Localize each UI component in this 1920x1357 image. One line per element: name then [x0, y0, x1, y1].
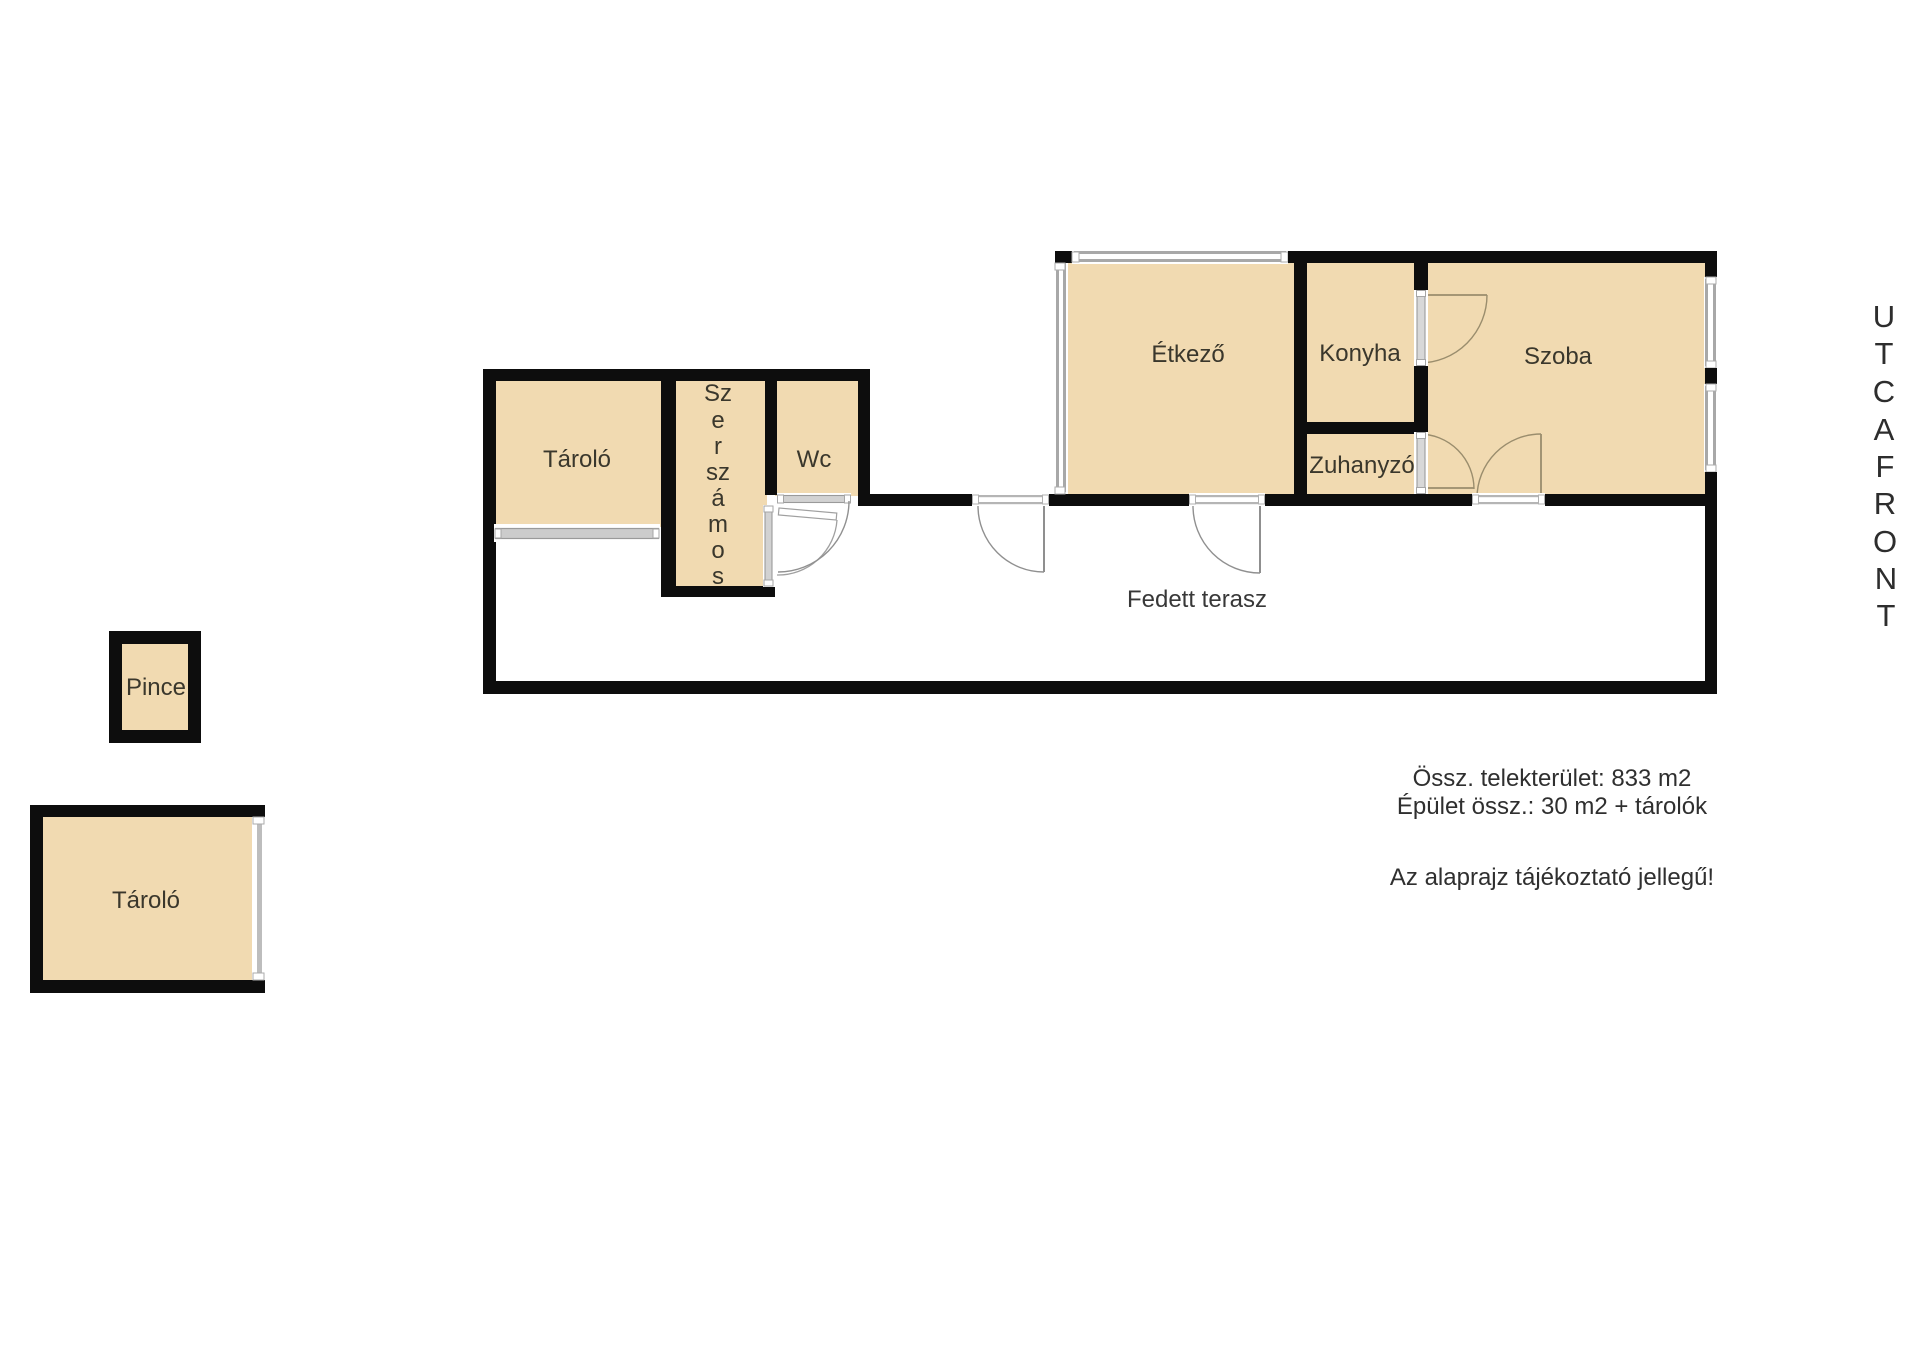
svg-text:Étkező: Étkező: [1151, 341, 1224, 368]
svg-text:A: A: [1874, 412, 1895, 447]
svg-text:Pince: Pince: [126, 674, 186, 701]
svg-text:O: O: [1873, 524, 1897, 559]
svg-text:Épület össz.: 30 m2 + tárolók: Épület össz.: 30 m2 + tárolók: [1397, 793, 1708, 820]
svg-text:N: N: [1875, 561, 1897, 596]
svg-text:T: T: [1875, 336, 1894, 371]
svg-text:Zuhanyzó: Zuhanyzó: [1309, 452, 1414, 479]
svg-text:Szoba: Szoba: [1524, 343, 1593, 370]
svg-text:Össz. telekterület: 833 m2: Össz. telekterület: 833 m2: [1413, 765, 1692, 792]
svg-text:s: s: [712, 563, 724, 590]
svg-text:T: T: [1877, 598, 1896, 633]
svg-text:Sz: Sz: [704, 380, 732, 407]
svg-text:e: e: [711, 407, 724, 434]
svg-text:Tároló: Tároló: [543, 446, 611, 473]
svg-text:R: R: [1874, 486, 1896, 521]
svg-text:Fedett terasz: Fedett terasz: [1127, 586, 1267, 613]
svg-text:Tároló: Tároló: [112, 887, 180, 914]
svg-text:F: F: [1876, 449, 1895, 484]
svg-text:m: m: [708, 511, 728, 538]
svg-text:á: á: [711, 485, 725, 512]
svg-text:Az alaprajz tájékoztató jelleg: Az alaprajz tájékoztató jellegű!: [1390, 864, 1714, 891]
svg-text:Wc: Wc: [797, 446, 832, 473]
svg-text:Konyha: Konyha: [1319, 340, 1401, 367]
svg-text:U: U: [1873, 299, 1895, 334]
svg-text:C: C: [1873, 374, 1895, 409]
svg-text:sz: sz: [706, 459, 730, 486]
svg-text:r: r: [714, 433, 722, 460]
svg-text:o: o: [711, 537, 724, 564]
